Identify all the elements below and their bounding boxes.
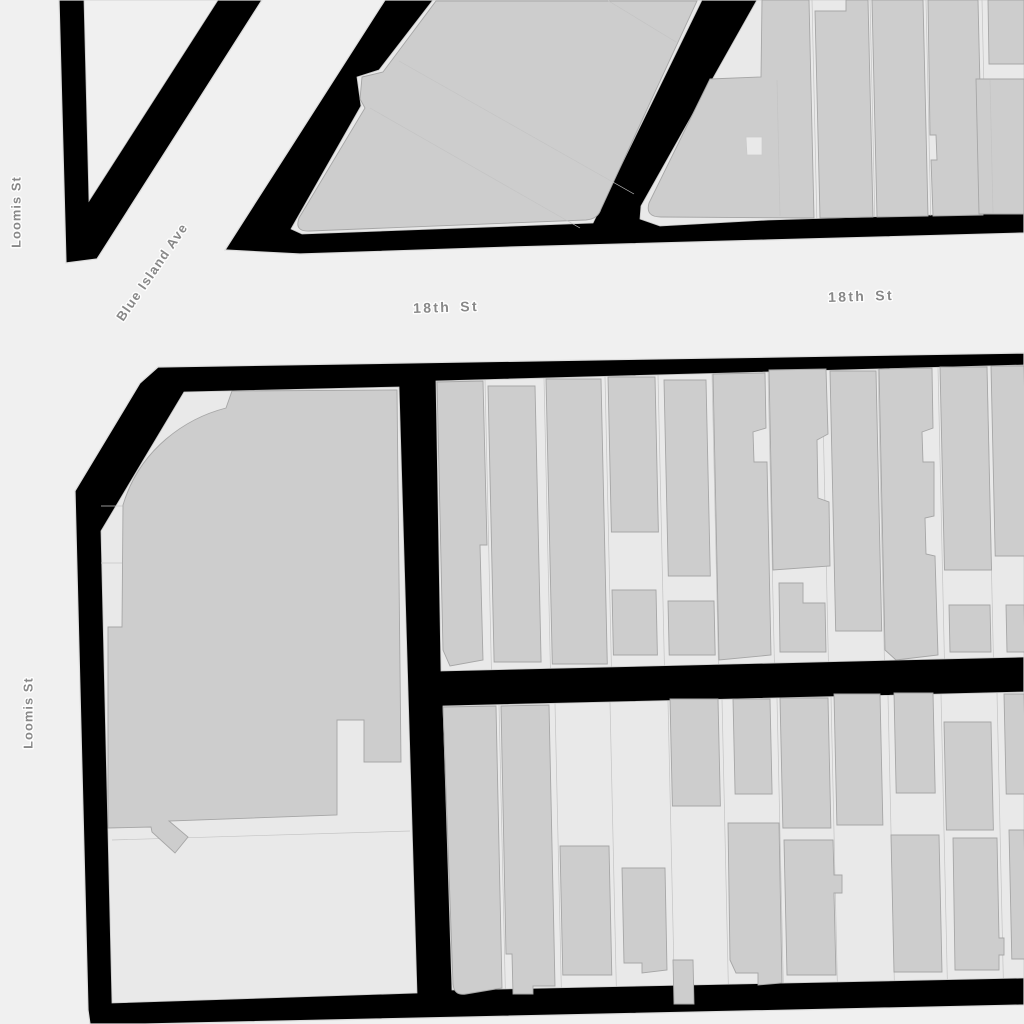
svg-text:Loomis St: Loomis St (21, 677, 36, 749)
svg-text:18th St: 18th St (828, 287, 894, 305)
svg-text:18th St: 18th St (413, 298, 479, 316)
svg-text:Loomis St: Loomis St (9, 176, 24, 248)
